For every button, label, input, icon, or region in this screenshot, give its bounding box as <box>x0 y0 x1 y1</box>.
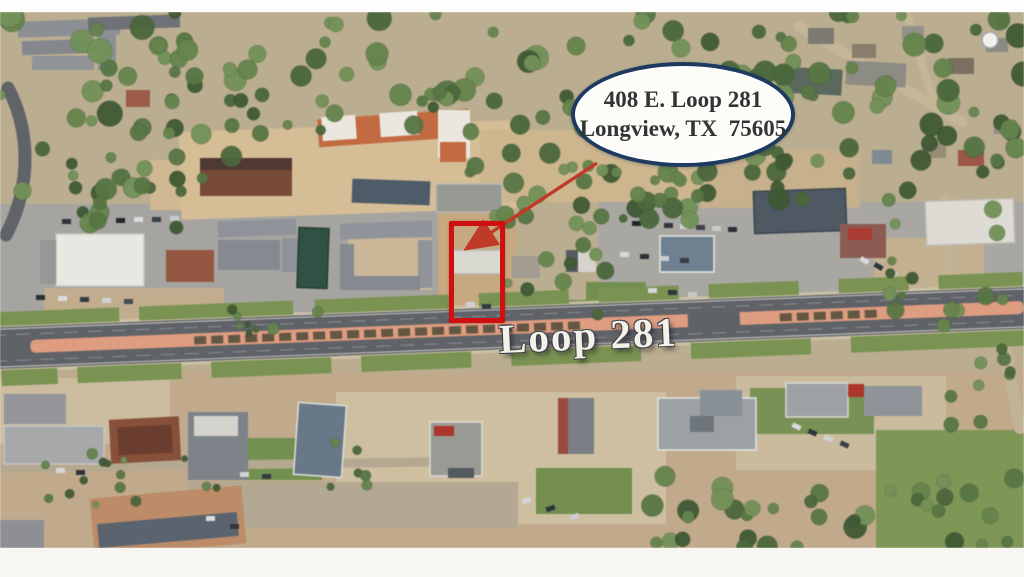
address-callout: 408 E. Loop 281 Longview, TX 75605 <box>571 62 795 167</box>
property-highlight-box <box>449 221 505 323</box>
flyer-page: Loop 281 408 E. Loop 281 Longview, TX 75… <box>0 0 1024 577</box>
callout-address-line: 408 E. Loop 281 <box>604 86 762 115</box>
callout-city-line: Longview, TX 75605 <box>580 115 787 144</box>
callout-arrow <box>0 0 1024 577</box>
photo-bottom-margin <box>0 548 1024 577</box>
road-label-loop-281: Loop 281 <box>498 308 679 363</box>
photo-top-margin <box>0 0 1024 12</box>
